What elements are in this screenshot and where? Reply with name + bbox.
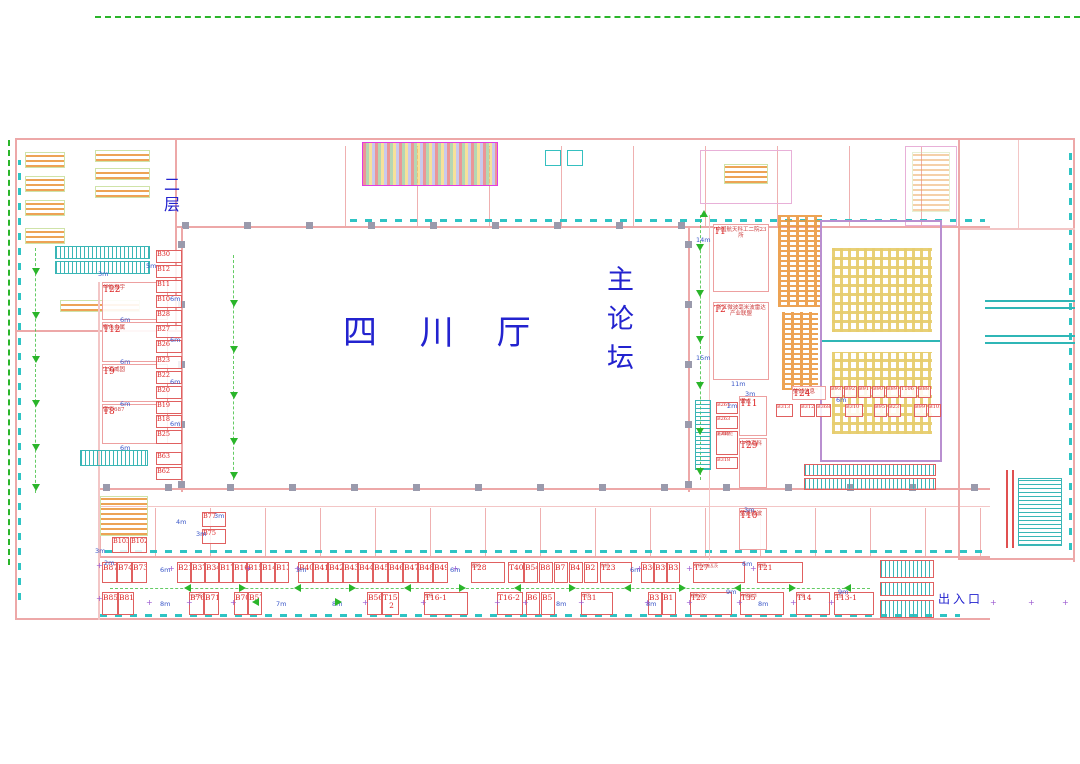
booth: B73 bbox=[132, 562, 147, 583]
restaurant-tables bbox=[25, 228, 65, 244]
survey-cross-icon: + bbox=[452, 565, 459, 573]
bottom-corridor-line bbox=[100, 506, 990, 507]
direction-arrow-icon bbox=[32, 312, 40, 319]
washroom-fixtures bbox=[912, 152, 950, 212]
dimension-label: 6m bbox=[170, 420, 180, 428]
booth: B34 bbox=[205, 562, 219, 583]
survey-cross-icon: + bbox=[990, 599, 997, 607]
booth: B54 bbox=[524, 562, 538, 583]
conference-seats-upper bbox=[832, 248, 932, 332]
direction-arrow-icon bbox=[32, 400, 40, 407]
walkway-line bbox=[985, 307, 1075, 309]
site-boundary-top bbox=[95, 16, 1080, 18]
direction-arrow-icon bbox=[696, 290, 704, 297]
booth: B48 bbox=[418, 562, 433, 583]
wall-top-outer bbox=[15, 138, 1075, 140]
booth: B310 bbox=[845, 404, 863, 417]
direction-arrow-icon bbox=[789, 584, 796, 592]
booth: B35 bbox=[667, 562, 680, 583]
booth: B25 bbox=[156, 430, 182, 444]
survey-cross-icon: + bbox=[522, 599, 529, 607]
booth: B312 bbox=[800, 404, 815, 417]
direction-arrow-icon bbox=[230, 300, 238, 307]
wall-bottom-outer bbox=[15, 618, 990, 620]
forum-seating bbox=[778, 215, 822, 307]
booth: B43 bbox=[343, 562, 358, 583]
booth: B44 bbox=[358, 562, 373, 583]
dimension-label: 15m bbox=[696, 354, 711, 362]
walkway-line bbox=[985, 342, 1075, 344]
booth: T16-2 bbox=[497, 592, 523, 615]
survey-cross-icon: + bbox=[790, 599, 797, 607]
booth: B90 bbox=[872, 386, 885, 398]
direction-arrow-icon bbox=[569, 584, 576, 592]
survey-cross-icon: + bbox=[736, 599, 743, 607]
booth: B21 bbox=[177, 562, 191, 583]
survey-cross-icon: + bbox=[245, 565, 252, 573]
survey-cross-icon: + bbox=[1028, 599, 1035, 607]
booth: B19 bbox=[156, 401, 182, 414]
right-wing-wall-west bbox=[958, 140, 960, 560]
booth: B71 bbox=[204, 592, 219, 615]
direction-arrow-icon bbox=[696, 244, 704, 251]
survey-cross-icon: + bbox=[578, 599, 585, 607]
booth: T28 蓝科 bbox=[471, 562, 505, 583]
direction-arrow-icon bbox=[514, 584, 521, 592]
direction-arrow-icon bbox=[32, 356, 40, 363]
conference-divider bbox=[822, 340, 940, 342]
booth: B41 bbox=[313, 562, 328, 583]
survey-cross-icon: + bbox=[1062, 599, 1069, 607]
direction-arrow-icon bbox=[696, 468, 704, 475]
dimension-label: 8m bbox=[556, 600, 566, 608]
booth: T106 bbox=[900, 386, 917, 398]
stairs-right bbox=[1018, 478, 1062, 546]
kitchen-service-block bbox=[362, 142, 498, 186]
dimension-label: 6m bbox=[170, 378, 180, 386]
bottom-corridor-sill bbox=[105, 550, 985, 553]
booth: T21 是德 bbox=[757, 562, 803, 583]
dimension-label: 8m bbox=[160, 600, 170, 608]
survey-cross-icon: + bbox=[96, 562, 103, 570]
booth: B63 bbox=[156, 452, 182, 465]
dimension-label: 2m bbox=[104, 559, 114, 567]
booth: B28 bbox=[156, 310, 182, 323]
conference-wall bbox=[820, 220, 942, 222]
bottom-corridor-wall bbox=[100, 556, 990, 558]
floor-label: 二层 bbox=[158, 176, 182, 216]
stair-rail bbox=[1006, 470, 1008, 548]
survey-cross-icon: + bbox=[186, 599, 193, 607]
exit-stairs bbox=[880, 560, 934, 578]
survey-cross-icon: + bbox=[146, 599, 153, 607]
dimension-label: 8m bbox=[758, 600, 768, 608]
dimension-label: 3m bbox=[744, 506, 754, 514]
booth: B102 bbox=[130, 537, 147, 553]
booth: B318 bbox=[716, 457, 738, 469]
direction-arrow-icon bbox=[239, 584, 246, 592]
booth: T15-2 bbox=[382, 592, 399, 615]
elevator-box bbox=[567, 150, 583, 166]
survey-cross-icon: + bbox=[494, 599, 501, 607]
booth: T29 中微高科 bbox=[739, 438, 767, 488]
booth: T16-1 宝德 bbox=[424, 592, 468, 615]
right-wing-room-divider bbox=[1018, 140, 1019, 228]
booth: B37 bbox=[191, 562, 205, 583]
direction-arrow-icon bbox=[679, 584, 686, 592]
hall-name-label: 四 川 厅 bbox=[343, 305, 547, 354]
conference-wall bbox=[820, 460, 942, 462]
booth: B95 bbox=[874, 404, 887, 417]
direction-arrow-icon bbox=[32, 268, 40, 275]
direction-arrow-icon bbox=[230, 438, 238, 445]
booth: B1 bbox=[662, 592, 676, 615]
dimension-label: 7m bbox=[276, 600, 286, 608]
direction-arrow-icon bbox=[349, 584, 356, 592]
booth: B56 bbox=[367, 592, 382, 615]
dimension-label: 6m bbox=[120, 316, 130, 324]
booth: B30 bbox=[156, 250, 182, 263]
direction-arrow-icon bbox=[404, 584, 411, 592]
stair-rail bbox=[1012, 470, 1014, 548]
survey-cross-icon: + bbox=[362, 599, 369, 607]
booth: T31 华正 bbox=[581, 592, 613, 615]
escalator-conference bbox=[804, 464, 936, 476]
walkway-line bbox=[985, 300, 1075, 302]
direction-arrow-icon bbox=[32, 484, 40, 491]
forum-seating bbox=[782, 312, 818, 390]
escalator-conference bbox=[804, 478, 936, 490]
aisle-mid-left bbox=[233, 255, 234, 480]
dimension-label: 3m bbox=[98, 270, 108, 278]
dimension-label: 6m bbox=[836, 396, 846, 404]
direction-arrow-icon bbox=[459, 584, 466, 592]
survey-cross-icon: + bbox=[230, 599, 237, 607]
dimension-label: 11m bbox=[731, 380, 746, 388]
aisle-left bbox=[35, 248, 36, 493]
booth: B14 bbox=[261, 562, 275, 583]
booth: T11 谱成 bbox=[739, 396, 767, 436]
booth: B103 bbox=[112, 537, 129, 553]
booth: T40 bbox=[508, 562, 524, 583]
bottom-corridor-rooms bbox=[100, 508, 990, 556]
direction-arrow-icon bbox=[696, 382, 704, 389]
dimension-label: 3m bbox=[745, 390, 755, 398]
survey-cross-icon: + bbox=[686, 565, 693, 573]
restaurant-tables bbox=[25, 176, 65, 192]
escalator-mid-right bbox=[695, 400, 711, 470]
survey-cross-icon: + bbox=[420, 599, 427, 607]
booth: T2 浙江微波毫米波雷达产业联盟 bbox=[713, 302, 769, 380]
booth: B11 bbox=[156, 280, 182, 293]
hall-columns-top bbox=[182, 222, 692, 229]
booth: B88 bbox=[918, 386, 931, 398]
direction-arrow-icon bbox=[700, 210, 708, 217]
dimension-label: 3m bbox=[214, 512, 224, 520]
survey-cross-icon: + bbox=[168, 565, 175, 573]
dimension-label: 5m bbox=[146, 262, 156, 270]
booth: B317 上海雍伦 bbox=[716, 431, 738, 455]
booth: B368 bbox=[816, 404, 831, 417]
booth: T27 罗德与施瓦茨 bbox=[693, 562, 745, 583]
booth: B99 bbox=[914, 404, 927, 417]
hall-columns-east bbox=[685, 232, 692, 488]
booth: B47 bbox=[403, 562, 418, 583]
booth: B12 bbox=[156, 265, 182, 278]
booth: T14 世强 bbox=[796, 592, 830, 615]
booth: T1 中国航天科工二院23所 bbox=[713, 224, 769, 292]
booth: B42 bbox=[328, 562, 343, 583]
site-boundary-left bbox=[8, 140, 10, 565]
right-wing-wall-bottom bbox=[958, 558, 1075, 560]
dimension-label: 4m bbox=[176, 518, 186, 526]
restaurant-tables bbox=[95, 168, 150, 180]
survey-cross-icon: + bbox=[828, 599, 835, 607]
survey-cross-icon: + bbox=[750, 565, 757, 573]
booth: T10 蓝菱微波 bbox=[739, 508, 767, 550]
escalator-upper-left bbox=[55, 246, 150, 259]
survey-cross-icon: + bbox=[644, 599, 651, 607]
booth: B81 bbox=[118, 592, 134, 615]
entrance-label: 出入口 bbox=[938, 590, 983, 607]
meeting-table bbox=[724, 164, 768, 184]
booth: B17 bbox=[219, 562, 233, 583]
booth: B263 bbox=[716, 416, 738, 429]
dimension-label: 2m bbox=[727, 402, 737, 410]
dimension-label: 6m bbox=[170, 336, 180, 344]
booth: B89 bbox=[886, 386, 899, 398]
booth: B20 bbox=[156, 386, 182, 399]
elevator-box bbox=[545, 150, 561, 166]
dimension-label: 6m bbox=[120, 400, 130, 408]
booth: B36 bbox=[641, 562, 654, 583]
wall-right-outer bbox=[1073, 138, 1075, 562]
direction-arrow-icon bbox=[294, 584, 301, 592]
direction-arrow-icon bbox=[184, 584, 191, 592]
booth: B74 bbox=[117, 562, 132, 583]
exit-escalator bbox=[880, 582, 934, 596]
wall-left-outer bbox=[15, 138, 17, 620]
booth: T23 为恒 bbox=[600, 562, 632, 583]
booth: B91 bbox=[858, 386, 871, 398]
booth: B46 bbox=[388, 562, 403, 583]
booth: B49 bbox=[433, 562, 448, 583]
conference-wall bbox=[940, 220, 942, 462]
booth: B39 bbox=[654, 562, 667, 583]
survey-cross-icon: + bbox=[686, 599, 693, 607]
booth: B8 bbox=[539, 562, 553, 583]
dimension-label: 14m bbox=[696, 236, 711, 244]
survey-cross-icon: + bbox=[636, 565, 643, 573]
booth: B45 bbox=[373, 562, 388, 583]
survey-cross-icon: + bbox=[294, 565, 301, 573]
forum-label: 主论坛 bbox=[598, 265, 637, 385]
direction-arrow-icon bbox=[624, 584, 631, 592]
window-strip-left bbox=[18, 160, 21, 600]
restaurant-tables bbox=[25, 152, 65, 168]
restaurant-tables bbox=[95, 150, 150, 162]
restaurant-tables bbox=[95, 186, 150, 198]
tables-bottom-left bbox=[100, 496, 148, 536]
exit-stairs bbox=[880, 600, 934, 618]
direction-arrow-icon bbox=[335, 598, 342, 606]
booth: B5 bbox=[541, 592, 555, 615]
direction-arrow-icon bbox=[230, 472, 238, 479]
restaurant-tables bbox=[25, 200, 65, 216]
dimension-label: 3m bbox=[196, 530, 206, 538]
aisle-bottom bbox=[110, 588, 870, 589]
dimension-label: 6m bbox=[170, 295, 180, 303]
dimension-label: 3m bbox=[95, 547, 105, 555]
booth: B7 bbox=[554, 562, 568, 583]
direction-arrow-icon bbox=[696, 336, 704, 343]
direction-arrow-icon bbox=[252, 598, 259, 606]
booth: B313 bbox=[776, 404, 793, 417]
dimension-label: 6m bbox=[120, 358, 130, 366]
booth: B2 bbox=[584, 562, 598, 583]
direction-arrow-icon bbox=[230, 392, 238, 399]
direction-arrow-icon bbox=[696, 428, 704, 435]
survey-cross-icon: + bbox=[96, 595, 103, 603]
booth: B23 bbox=[156, 356, 182, 369]
booth: B23 bbox=[888, 404, 901, 417]
direction-arrow-icon bbox=[734, 584, 741, 592]
booth: T24 美诚信息 bbox=[792, 386, 826, 400]
right-wing-wall-inner bbox=[960, 228, 1075, 230]
booth: B13 bbox=[275, 562, 289, 583]
booth: B101 bbox=[928, 404, 941, 417]
booth: B4 bbox=[569, 562, 583, 583]
floor-plan-canvas: 二层 四 川 厅 主论坛 出入口 bbox=[0, 0, 1080, 764]
window-strip-right bbox=[1069, 150, 1072, 550]
direction-arrow-icon bbox=[230, 346, 238, 353]
booth: B85 bbox=[102, 592, 118, 615]
dimension-label: 6m bbox=[120, 444, 130, 452]
direction-arrow-icon bbox=[844, 584, 851, 592]
direction-arrow-icon bbox=[32, 444, 40, 451]
booth: B62 bbox=[156, 467, 182, 480]
wall-east-corridor bbox=[709, 215, 710, 560]
escalator-lower-left bbox=[80, 450, 148, 466]
walkway-line bbox=[985, 335, 1075, 337]
